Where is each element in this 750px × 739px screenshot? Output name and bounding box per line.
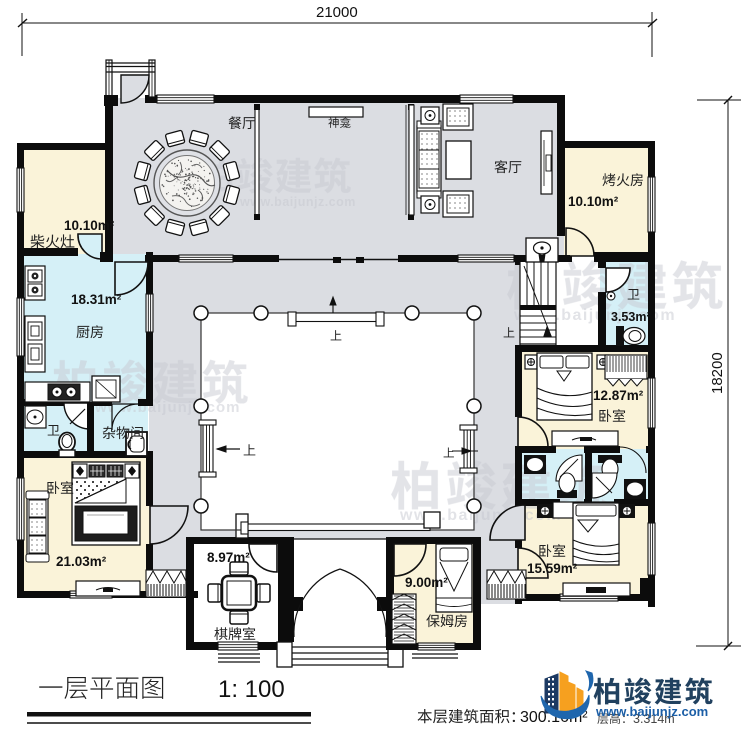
svg-text:www.baijunjz.com: www.baijunjz.com xyxy=(595,704,708,719)
svg-text:10.10m²: 10.10m² xyxy=(568,194,619,209)
svg-text:21.03m²: 21.03m² xyxy=(56,554,107,569)
svg-text:8.97m²: 8.97m² xyxy=(207,550,250,565)
svg-text:18.31m²: 18.31m² xyxy=(71,292,122,307)
svg-text:10.10m²: 10.10m² xyxy=(64,218,115,233)
svg-text:15.59m²: 15.59m² xyxy=(527,561,578,576)
svg-text:9.00m²: 9.00m² xyxy=(405,575,448,590)
svg-text:1: 100: 1: 100 xyxy=(218,676,285,703)
svg-text:3.53m²: 3.53m² xyxy=(611,310,651,324)
svg-text:18200: 18200 xyxy=(709,352,726,394)
svg-text:21000: 21000 xyxy=(316,4,358,21)
svg-text:12.87m²: 12.87m² xyxy=(593,388,644,403)
